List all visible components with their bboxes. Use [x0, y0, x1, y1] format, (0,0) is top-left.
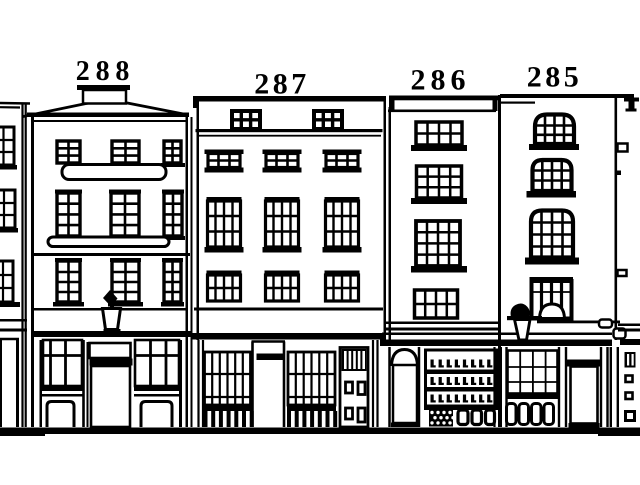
svg-text:288: 288: [76, 56, 135, 87]
svg-text:286: 286: [411, 64, 471, 97]
svg-text:287: 287: [254, 68, 310, 101]
svg-text:285: 285: [527, 61, 583, 94]
